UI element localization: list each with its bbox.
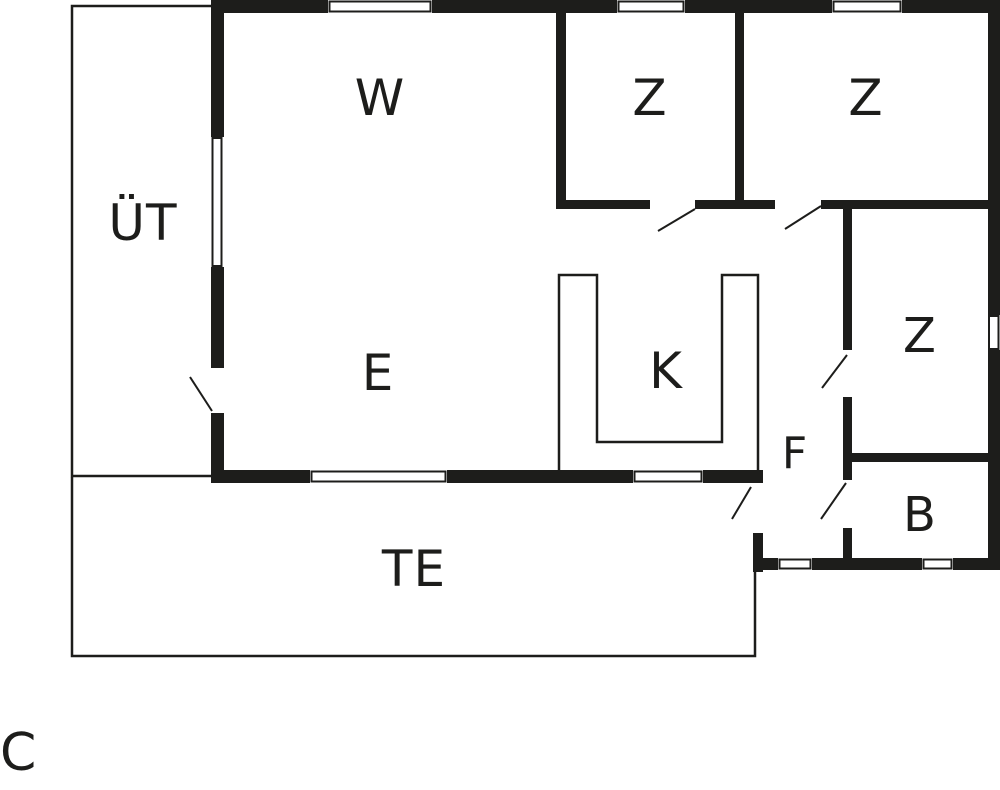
window-frame-top-2 [619,2,684,12]
window-frame-top-1 [330,2,431,12]
door-swing-z1 [658,209,695,231]
door-opening-z2 [775,200,821,209]
interior-wall-w-z1 [556,13,566,207]
room-label-k: K [649,342,683,400]
door-opening-te [753,483,763,533]
door-swing-z2 [785,206,821,229]
window-frame-left [213,138,222,266]
door-swing-te [732,487,751,519]
room-label-f: F [782,428,808,479]
door-swing-ut [190,377,212,411]
interior-wall-z3-b [843,453,988,462]
plan-section-marker: C [0,723,37,783]
room-label-ut: ÜT [108,194,177,252]
room-label-z3: Z [903,308,937,364]
door-opening-z1 [650,200,695,209]
room-label-z2: Z [848,69,883,127]
door-opening-b [843,480,852,528]
room-label-te: TE [381,540,446,598]
floor-plan: W ÜT E Z Z Z K F B TE C [0,0,1000,790]
room-label-e: E [362,344,395,402]
window-frame-f [780,560,811,569]
interior-wall-hall [556,200,988,209]
floor-plan-canvas: W ÜT E Z Z Z K F B TE C [0,0,1000,790]
window-frame-right [989,316,999,349]
interior-wall-z1-z2 [735,13,744,207]
window-frame-bottom-2 [635,472,702,482]
door-opening-ut [211,368,224,413]
room-label-z1: Z [632,69,667,127]
window-frame-b [924,560,952,569]
window-frame-bottom-1 [312,472,446,482]
room-label-w: W [355,69,405,127]
exterior-wall-right [988,0,1000,568]
door-swing-b [821,483,846,519]
room-label-b: B [903,487,937,543]
window-frame-top-3 [834,2,901,12]
